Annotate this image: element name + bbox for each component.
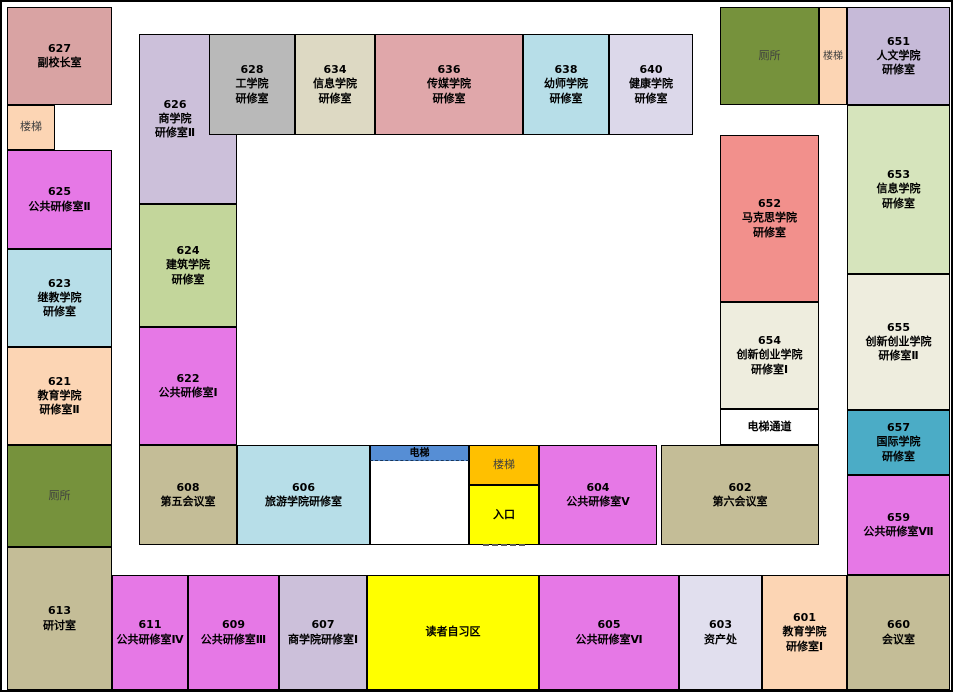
room-607: 607商学院研修室Ⅰ: [279, 575, 367, 690]
room-label-line: 研修室: [877, 63, 921, 77]
room-label-line: 工学院: [236, 77, 269, 91]
room-label-line: 608: [161, 481, 216, 495]
room-label: 601教育学院研修室Ⅰ: [783, 611, 827, 654]
room-label-line: 研修室: [877, 197, 921, 211]
room-634: 634信息学院研修室: [295, 34, 375, 135]
room-label-line: 楼梯: [20, 120, 42, 134]
room-625: 625公共研修室Ⅱ: [7, 150, 112, 249]
room-621: 621教育学院研修室Ⅱ: [7, 347, 112, 445]
room-label-line: 公共研修室Ⅶ: [863, 525, 933, 539]
room-609: 609公共研修室Ⅲ: [188, 575, 279, 690]
room-label: 电梯通道: [748, 420, 792, 434]
room-624: 624建筑学院研修室: [139, 204, 237, 327]
room-label: 605公共研修室Ⅵ: [575, 618, 642, 647]
elevator-shaft: 电梯: [370, 445, 469, 545]
room-label-line: 研修室: [166, 273, 210, 287]
room-label-line: 634: [313, 63, 357, 77]
room-label-line: 626: [140, 98, 210, 112]
room-622: 622公共研修室Ⅰ: [139, 327, 237, 445]
room-label-line: 606: [265, 481, 342, 495]
room-label-line: 传媒学院: [427, 77, 471, 91]
stairs-top-left: 楼梯: [7, 105, 55, 150]
floor-plan: 627副校长室楼梯625公共研修室Ⅱ623继教学院研修室621教育学院研修室Ⅱ厕…: [0, 0, 953, 692]
room-label-line: 研修室: [544, 92, 588, 106]
room-label: 653信息学院研修室: [877, 168, 921, 211]
room-label-line: 研修室Ⅰ: [737, 363, 803, 377]
toilet-top-right: 厕所: [720, 7, 819, 105]
room-label-line: 商学院研修室Ⅰ: [288, 633, 358, 647]
room-label: 622公共研修室Ⅰ: [158, 372, 217, 401]
stairs-bottom: 楼梯: [469, 445, 539, 485]
room-655: 655创新创业学院研修室Ⅱ: [847, 274, 950, 410]
room-label: 651人文学院研修室: [877, 35, 921, 78]
room-label: 623继教学院研修室: [38, 277, 82, 320]
room-label: 640健康学院研修室: [629, 63, 673, 106]
room-label-line: 资产处: [704, 633, 737, 647]
room-label-line: 607: [288, 618, 358, 632]
room-label: 636传媒学院研修室: [427, 63, 471, 106]
room-label: 628工学院研修室: [236, 63, 269, 106]
room-label-line: 读者自习区: [426, 625, 481, 639]
room-611: 611公共研修室Ⅳ: [112, 575, 188, 690]
room-label-line: 副校长室: [38, 56, 82, 70]
room-label-line: 公共研修室Ⅵ: [575, 633, 642, 647]
room-label-line: 636: [427, 63, 471, 77]
room-label-line: 建筑学院: [166, 258, 210, 272]
room-label-line: 627: [38, 42, 82, 56]
room-657: 657国际学院研修室: [847, 410, 950, 475]
room-653: 653信息学院研修室: [847, 105, 950, 274]
room-label-line: 625: [28, 185, 90, 199]
room-652: 652马克思学院研修室: [720, 135, 819, 302]
room-label-line: 652: [742, 197, 797, 211]
room-label: 627副校长室: [38, 42, 82, 71]
room-label-line: 创新创业学院: [866, 335, 932, 349]
room-label: 604公共研修室Ⅴ: [566, 481, 630, 510]
room-label-line: 研讨室: [43, 619, 76, 633]
room-label-line: 公共研修室Ⅰ: [158, 386, 217, 400]
room-651: 651人文学院研修室: [847, 7, 950, 105]
room-label: 608第五会议室: [161, 481, 216, 510]
room-label-line: 611: [116, 618, 183, 632]
room-label: 659公共研修室Ⅶ: [863, 511, 933, 540]
room-label-line: 655: [866, 321, 932, 335]
entrance-opening-dash: [483, 544, 525, 546]
room-label: 602第六会议室: [713, 481, 768, 510]
room-label-line: 公共研修室Ⅱ: [28, 200, 90, 214]
room-label-line: 660: [882, 618, 915, 632]
room-label: 613研讨室: [43, 604, 76, 633]
room-label-line: 第六会议室: [713, 495, 768, 509]
room-label-line: 研修室Ⅱ: [866, 349, 932, 363]
room-label-line: 公共研修室Ⅲ: [201, 633, 266, 647]
room-label-line: 信息学院: [313, 77, 357, 91]
room-601: 601教育学院研修室Ⅰ: [762, 575, 847, 690]
room-label-line: 研修室: [38, 305, 82, 319]
room-label-line: 人文学院: [877, 49, 921, 63]
room-label-line: 653: [877, 168, 921, 182]
room-label-line: 楼梯: [493, 458, 515, 472]
room-label-line: 继教学院: [38, 291, 82, 305]
room-label-line: 研修室: [877, 450, 921, 464]
room-label: 634信息学院研修室: [313, 63, 357, 106]
room-label: 厕所: [49, 489, 71, 503]
elevator-label-bar: 电梯: [370, 445, 469, 461]
room-623: 623继教学院研修室: [7, 249, 112, 347]
room-label-line: 研修室Ⅱ: [38, 403, 82, 417]
room-label: 楼梯: [493, 458, 515, 472]
room-label-line: 613: [43, 604, 76, 618]
room-label-line: 研修室: [427, 92, 471, 106]
room-label-line: 创新创业学院: [737, 348, 803, 362]
room-628: 628工学院研修室: [209, 34, 295, 135]
room-label: 603资产处: [704, 618, 737, 647]
room-label-line: 信息学院: [877, 182, 921, 196]
room-605: 605公共研修室Ⅵ: [539, 575, 679, 690]
room-label: 楼梯: [20, 120, 42, 134]
elevator-passage: 电梯通道: [720, 409, 819, 445]
room-label-line: 公共研修室Ⅴ: [566, 495, 630, 509]
room-label-line: 研修室: [236, 92, 269, 106]
room-label-line: 657: [877, 421, 921, 435]
room-label-line: 622: [158, 372, 217, 386]
room-label: 660会议室: [882, 618, 915, 647]
room-label-line: 马克思学院: [742, 211, 797, 225]
room-label-line: 651: [877, 35, 921, 49]
room-602: 602第六会议室: [661, 445, 819, 545]
room-label-line: 旅游学院研修室: [265, 495, 342, 509]
room-label: 楼梯: [823, 50, 843, 63]
room-label-line: 624: [166, 244, 210, 258]
stairs-top-right: 楼梯: [819, 7, 847, 105]
room-label: 厕所: [759, 49, 781, 63]
room-label-line: 电梯通道: [748, 420, 792, 434]
room-label: 611公共研修室Ⅳ: [116, 618, 183, 647]
room-638: 638幼师学院研修室: [523, 34, 609, 135]
room-label-line: 605: [575, 618, 642, 632]
room-label: 624建筑学院研修室: [166, 244, 210, 287]
room-label-line: 研修室: [313, 92, 357, 106]
room-label-line: 会议室: [882, 633, 915, 647]
room-label-line: 楼梯: [823, 50, 843, 63]
room-label-line: 研修室Ⅰ: [783, 640, 827, 654]
room-654: 654创新创业学院研修室Ⅰ: [720, 302, 819, 409]
room-604: 604公共研修室Ⅴ: [539, 445, 657, 545]
room-label-line: 654: [737, 334, 803, 348]
room-label-line: 640: [629, 63, 673, 77]
room-label: 657国际学院研修室: [877, 421, 921, 464]
room-label-line: 628: [236, 63, 269, 77]
room-label: 625公共研修室Ⅱ: [28, 185, 90, 214]
room-label: 606旅游学院研修室: [265, 481, 342, 510]
room-640: 640健康学院研修室: [609, 34, 693, 135]
room-label-line: 604: [566, 481, 630, 495]
room-label-line: 第五会议室: [161, 495, 216, 509]
room-627: 627副校长室: [7, 7, 112, 105]
room-label-line: 商学院: [140, 112, 210, 126]
room-label-line: 教育学院: [38, 389, 82, 403]
room-label-line: 601: [783, 611, 827, 625]
room-603: 603资产处: [679, 575, 762, 690]
room-label-line: 幼师学院: [544, 77, 588, 91]
room-label: 654创新创业学院研修室Ⅰ: [737, 334, 803, 377]
room-613: 613研讨室: [7, 547, 112, 690]
room-label-line: 研修室: [629, 92, 673, 106]
room-660: 660会议室: [847, 575, 950, 690]
toilet-left: 厕所: [7, 445, 112, 547]
room-label-line: 健康学院: [629, 77, 673, 91]
room-label-line: 厕所: [49, 489, 71, 503]
room-label-line: 厕所: [759, 49, 781, 63]
room-label-line: 638: [544, 63, 588, 77]
room-label-line: 621: [38, 375, 82, 389]
room-label-line: 623: [38, 277, 82, 291]
room-label: 607商学院研修室Ⅰ: [288, 618, 358, 647]
room-label: 621教育学院研修室Ⅱ: [38, 375, 82, 418]
room-label-line: 602: [713, 481, 768, 495]
room-608: 608第五会议室: [139, 445, 237, 545]
room-label: 609公共研修室Ⅲ: [201, 618, 266, 647]
room-label: 626商学院研修室Ⅱ: [140, 35, 210, 203]
room-label-line: 研修室Ⅱ: [140, 126, 210, 140]
room-label: 655创新创业学院研修室Ⅱ: [866, 321, 932, 364]
room-label-line: 609: [201, 618, 266, 632]
entrance: 入口: [469, 485, 539, 545]
room-label-line: 研修室: [742, 226, 797, 240]
room-606: 606旅游学院研修室: [237, 445, 370, 545]
room-label-line: 电梯: [410, 447, 430, 460]
room-label: 入口: [493, 508, 515, 522]
room-label-line: 603: [704, 618, 737, 632]
room-label-line: 国际学院: [877, 435, 921, 449]
room-label-line: 入口: [493, 508, 515, 522]
room-label: 读者自习区: [426, 625, 481, 639]
room-label: 638幼师学院研修室: [544, 63, 588, 106]
room-659: 659公共研修室Ⅶ: [847, 475, 950, 575]
reading-area: 读者自习区: [367, 575, 539, 690]
room-636: 636传媒学院研修室: [375, 34, 523, 135]
room-label-line: 659: [863, 511, 933, 525]
room-label-line: 教育学院: [783, 625, 827, 639]
room-label: 652马克思学院研修室: [742, 197, 797, 240]
room-label-line: 公共研修室Ⅳ: [116, 633, 183, 647]
